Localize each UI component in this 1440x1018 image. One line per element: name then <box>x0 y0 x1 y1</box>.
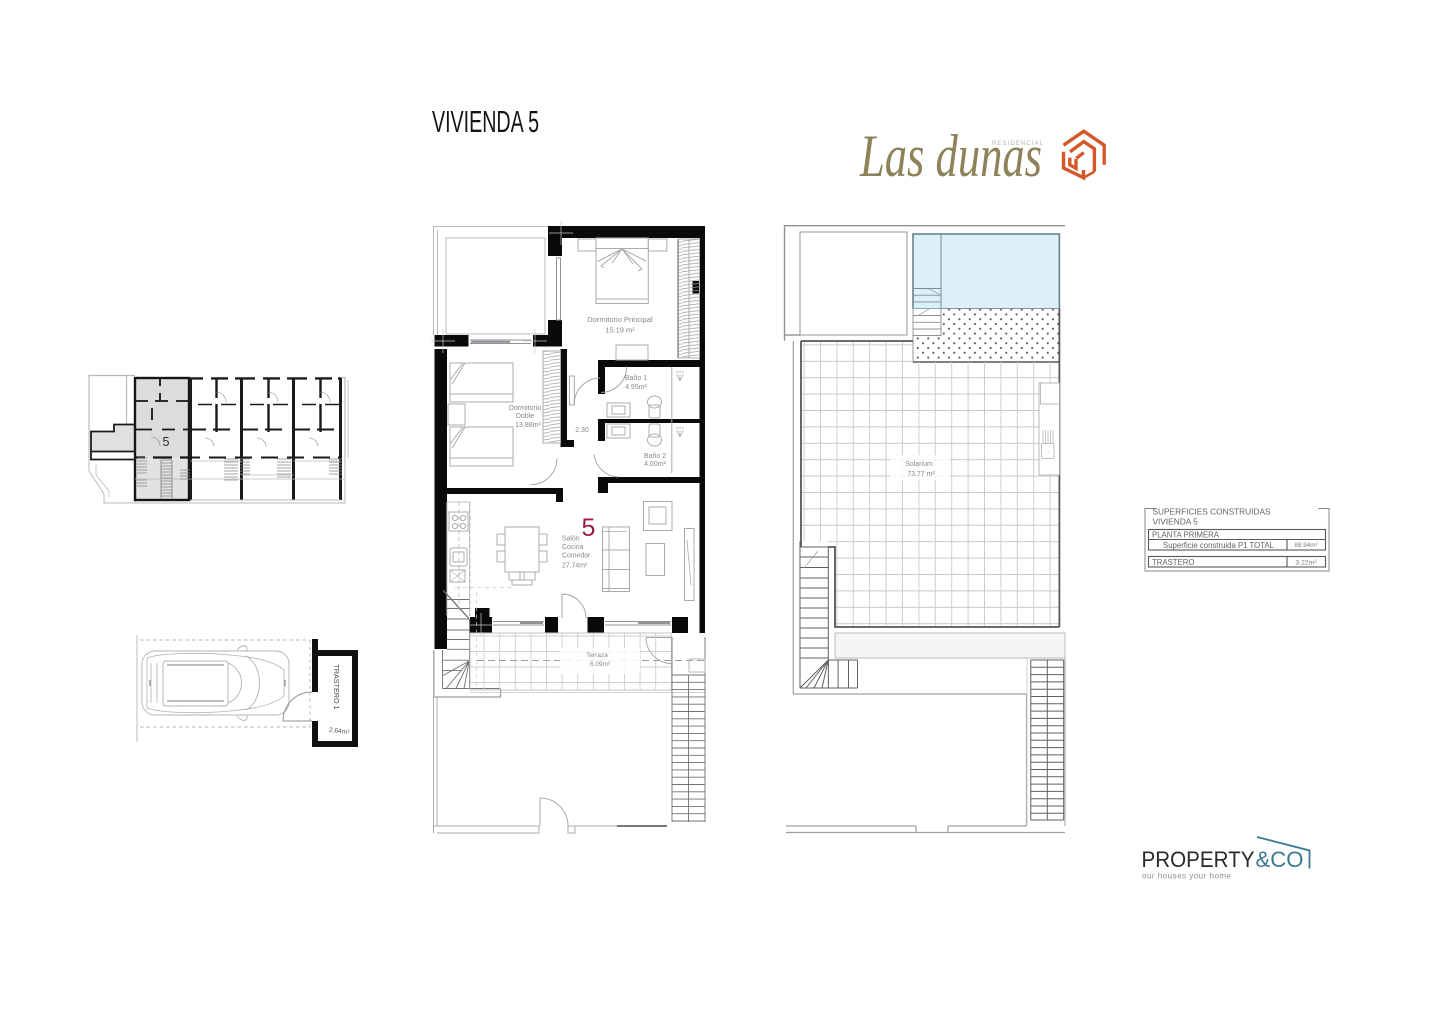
svg-text:5: 5 <box>163 435 170 449</box>
svg-text:88.94m²: 88.94m² <box>1294 542 1317 549</box>
svg-text:Baño 2: Baño 2 <box>644 453 666 460</box>
svg-text:Comedor: Comedor <box>562 553 591 560</box>
svg-text:Cocina: Cocina <box>562 544 584 551</box>
svg-text:TRASTERO: TRASTERO <box>1152 558 1194 567</box>
svg-text:Salón: Salón <box>562 536 580 543</box>
svg-text:2.64m²: 2.64m² <box>329 727 351 737</box>
svg-text:5: 5 <box>582 514 596 542</box>
svg-text:27.74m²: 27.74m² <box>562 563 588 570</box>
svg-text:Dormitorio Principal: Dormitorio Principal <box>587 315 653 324</box>
svg-text:73.77 m²: 73.77 m² <box>907 471 935 478</box>
svg-text:&CO: &CO <box>1256 847 1304 872</box>
svg-text:Superficie construida P1 TOTAL: Superficie construida P1 TOTAL <box>1163 541 1275 550</box>
svg-text:our houses your home: our houses your home <box>1142 872 1232 881</box>
svg-text:15.19 m²: 15.19 m² <box>605 326 635 335</box>
svg-text:VIVIENDA 5: VIVIENDA 5 <box>432 104 539 139</box>
svg-text:TRASTERO 1: TRASTERO 1 <box>332 664 341 709</box>
svg-text:6.09m²: 6.09m² <box>590 661 611 668</box>
svg-text:3.22m²: 3.22m² <box>1295 559 1317 566</box>
svg-text:Baño 1: Baño 1 <box>625 375 647 382</box>
svg-text:4.00m²: 4.00m² <box>644 461 666 468</box>
svg-text:Solarium: Solarium <box>905 461 933 468</box>
svg-text:4.95m²: 4.95m² <box>625 384 647 391</box>
svg-text:Las dunas: Las dunas <box>859 123 1042 189</box>
svg-text:Doble: Doble <box>516 413 534 420</box>
svg-text:Dormitorio: Dormitorio <box>509 405 541 412</box>
svg-text:PROPERTY: PROPERTY <box>1142 847 1255 872</box>
svg-text:VIVIENDA 5: VIVIENDA 5 <box>1153 517 1199 527</box>
svg-text:13.88m²: 13.88m² <box>515 422 541 429</box>
svg-text:PLANTA PRIMERA: PLANTA PRIMERA <box>1152 531 1220 540</box>
svg-text:RESIDENCIAL: RESIDENCIAL <box>992 141 1044 147</box>
svg-text:Terraza: Terraza <box>586 652 608 659</box>
svg-text:SUPERFICIES CONSTRUIDAS: SUPERFICIES CONSTRUIDAS <box>1153 507 1271 517</box>
svg-text:2.30: 2.30 <box>575 427 589 434</box>
